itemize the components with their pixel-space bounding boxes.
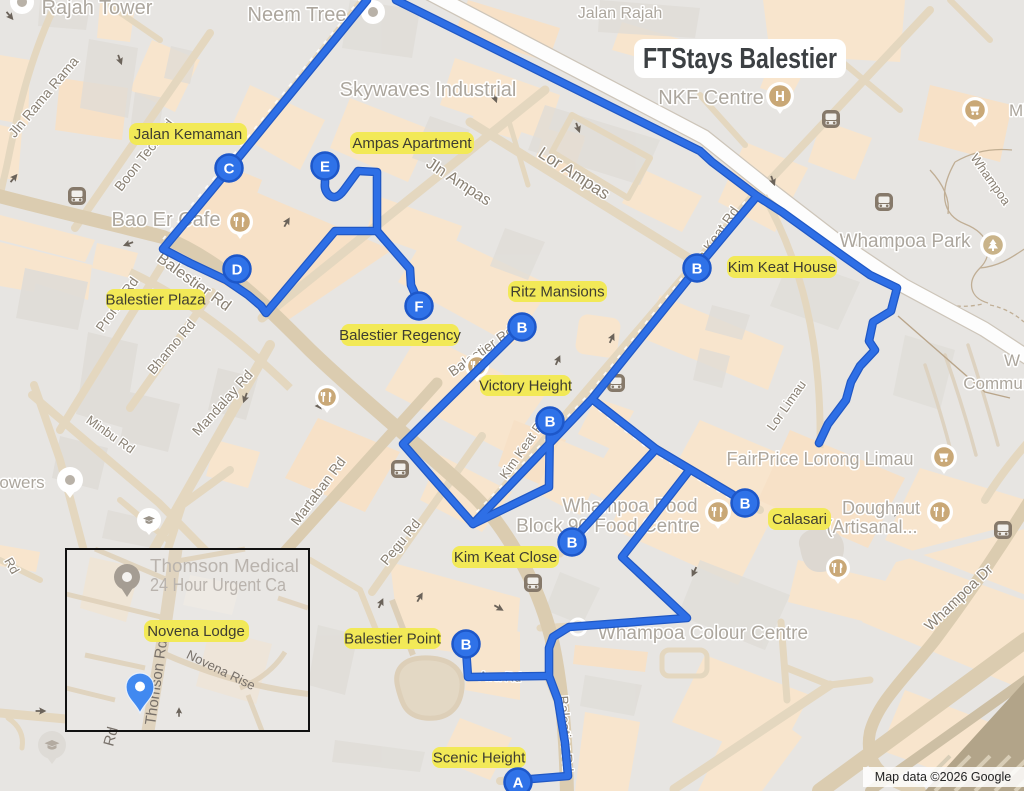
svg-text:B: B	[740, 496, 751, 513]
svg-text:Thomson Medical: Thomson Medical	[150, 556, 299, 576]
svg-text:B: B	[567, 535, 578, 552]
svg-text:Map data ©2026 Google: Map data ©2026 Google	[875, 770, 1011, 784]
svg-text:Jalan Kemaman: Jalan Kemaman	[134, 126, 242, 143]
svg-text:Skywaves Industrial: Skywaves Industrial	[340, 79, 517, 101]
svg-text:C: C	[224, 161, 235, 178]
svg-text:Doughnut: Doughnut	[842, 498, 920, 518]
svg-text:FairPrice Lorong Limau: FairPrice Lorong Limau	[726, 449, 913, 469]
svg-text:24 Hour Urgent Ca: 24 Hour Urgent Ca	[150, 575, 287, 595]
svg-text:Mi: Mi	[1009, 101, 1024, 120]
svg-text:Kim Keat House: Kim Keat House	[728, 259, 836, 276]
svg-text:E: E	[320, 159, 330, 176]
svg-text:Bao Er Cafe: Bao Er Cafe	[112, 209, 221, 231]
svg-text:Block 90 Food Centre: Block 90 Food Centre	[516, 516, 700, 537]
svg-text:W: W	[1004, 351, 1020, 370]
svg-text:Communit: Communit	[963, 374, 1024, 393]
svg-text:B: B	[692, 261, 703, 278]
svg-text:NKF Centre: NKF Centre	[658, 87, 764, 109]
svg-text:Ritz Mansions: Ritz Mansions	[510, 284, 604, 301]
svg-text:B: B	[517, 320, 528, 337]
svg-text:Scenic Height: Scenic Height	[433, 750, 526, 767]
svg-text:Neem Tree: Neem Tree	[248, 4, 347, 26]
svg-text:Whampoa Park: Whampoa Park	[840, 231, 971, 252]
svg-text:D: D	[232, 262, 243, 279]
svg-text:Whampoa Food: Whampoa Food	[562, 496, 697, 517]
svg-text:Calasari: Calasari	[772, 511, 827, 528]
svg-text:(Artisanal...: (Artisanal...	[826, 517, 917, 537]
svg-text:Kim Keat Close: Kim Keat Close	[454, 549, 557, 566]
svg-text:Balestier Plaza: Balestier Plaza	[105, 292, 206, 309]
svg-text:A: A	[513, 775, 524, 791]
svg-text:Novena Lodge: Novena Lodge	[147, 623, 245, 640]
svg-text:Rajah Tower: Rajah Tower	[42, 0, 153, 19]
svg-text:Jalan Rajah: Jalan Rajah	[578, 5, 663, 22]
svg-text:Balestier Point: Balestier Point	[344, 631, 442, 648]
svg-text:Ampas Apartment: Ampas Apartment	[352, 135, 472, 152]
svg-text:B: B	[545, 414, 556, 431]
svg-text:FTStays Balestier: FTStays Balestier	[643, 43, 837, 75]
svg-text:Victory Height: Victory Height	[479, 378, 573, 395]
svg-text:Balestier Regency: Balestier Regency	[339, 327, 461, 344]
svg-text:B: B	[461, 637, 472, 654]
svg-text:owers: owers	[0, 473, 45, 492]
svg-text:F: F	[414, 299, 423, 316]
